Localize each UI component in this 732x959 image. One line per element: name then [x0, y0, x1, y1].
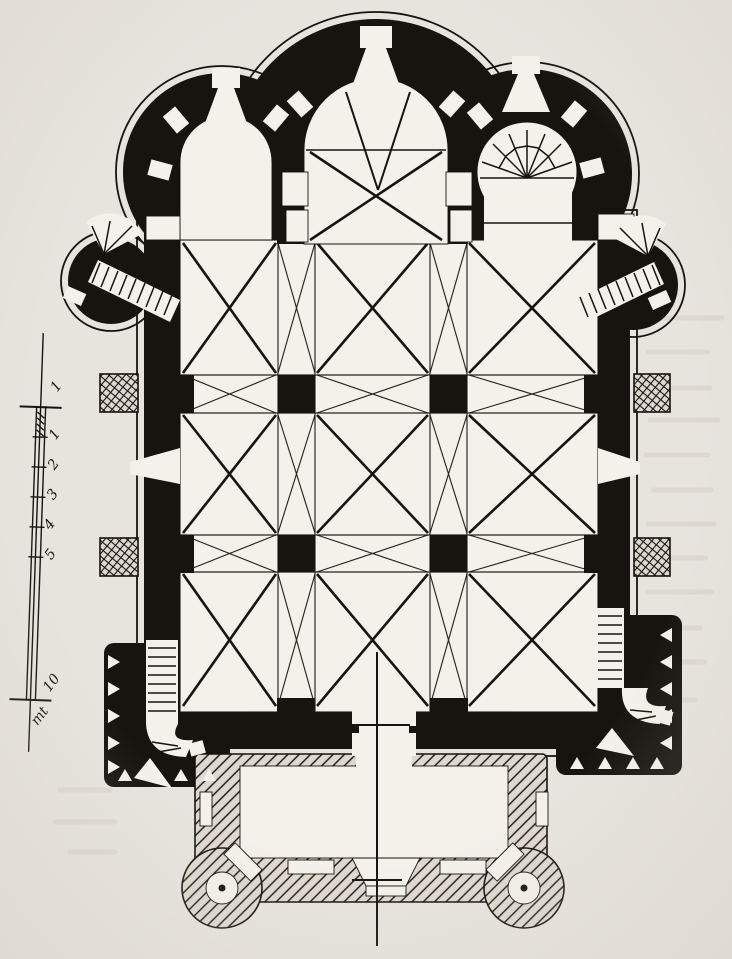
- scan-vignette: [0, 0, 732, 959]
- church-floor-plan-drawing: 1 1 2 3 4 5 10 mt: [0, 0, 732, 959]
- scanned-church-floor-plan-page: 1 1 2 3 4 5 10 mt: [0, 0, 732, 959]
